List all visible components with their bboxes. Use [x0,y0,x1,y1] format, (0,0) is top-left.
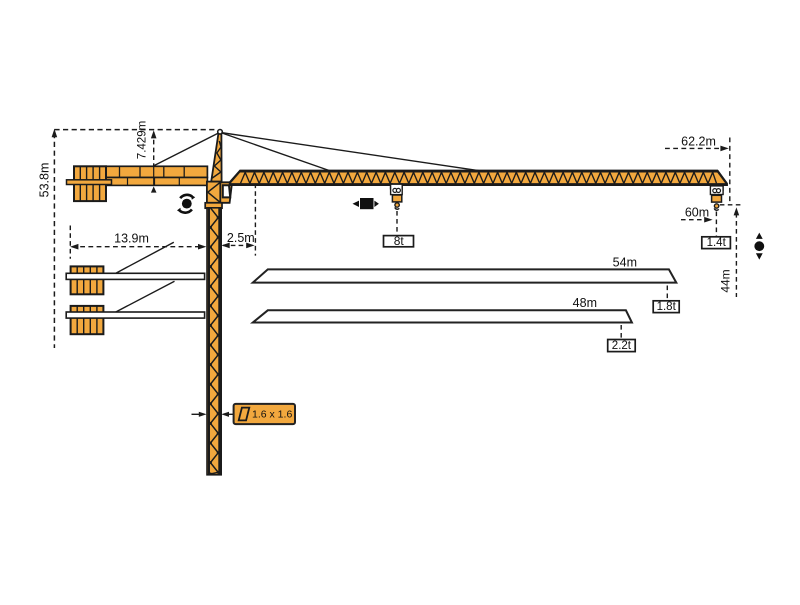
svg-text:8t: 8t [394,234,405,248]
svg-text:2.2t: 2.2t [612,340,632,352]
svg-text:2.5m: 2.5m [227,231,255,245]
svg-text:54m: 54m [613,255,637,269]
svg-text:1.4t: 1.4t [707,237,727,249]
svg-text:1.8t: 1.8t [657,301,677,313]
svg-text:48m: 48m [573,296,597,310]
svg-text:44m: 44m [719,269,733,292]
svg-text:13.9m: 13.9m [114,232,149,246]
svg-text:1.6 x 1.6: 1.6 x 1.6 [252,409,292,421]
svg-text:62.2m: 62.2m [681,135,716,149]
svg-text:7.429m: 7.429m [137,121,149,159]
svg-text:53.8m: 53.8m [38,163,52,198]
